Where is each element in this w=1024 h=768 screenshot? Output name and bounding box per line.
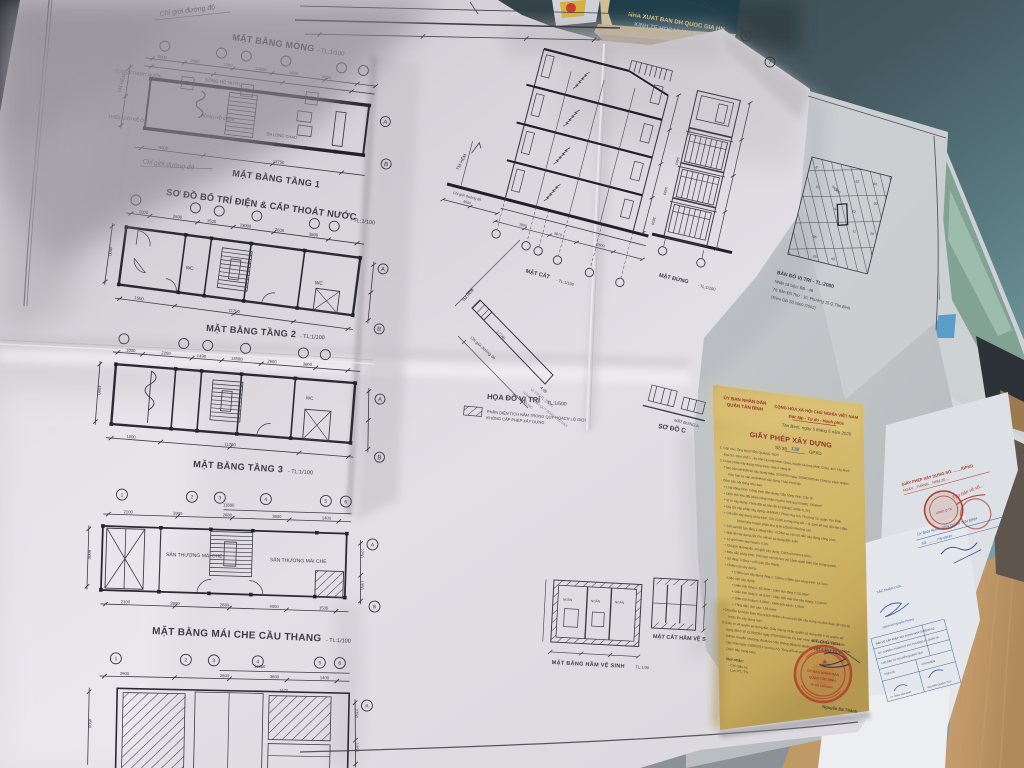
svg-text:2: 2 <box>190 495 193 501</box>
svg-text:3600: 3600 <box>270 674 280 679</box>
svg-text:WC: WC <box>306 395 315 401</box>
svg-text:1400: 1400 <box>320 675 330 680</box>
svg-text:5: 5 <box>318 660 321 666</box>
svg-text:6000: 6000 <box>87 550 92 560</box>
svg-text:2: 2 <box>184 658 187 664</box>
svg-text:1350: 1350 <box>355 743 360 753</box>
svg-text:WC: WC <box>314 280 323 287</box>
svg-text:1000: 1000 <box>126 434 136 440</box>
svg-text:1: 1 <box>114 656 117 662</box>
svg-text:3800: 3800 <box>303 361 313 367</box>
svg-text:2600: 2600 <box>267 359 277 365</box>
svg-text:1350: 1350 <box>360 580 365 590</box>
svg-text:5: 5 <box>324 499 327 505</box>
svg-text:NGĂN: NGĂN <box>563 598 573 603</box>
svg-text:3: 3 <box>218 495 221 501</box>
svg-text:1000: 1000 <box>126 347 136 353</box>
svg-text:2750: 2750 <box>360 548 365 558</box>
svg-text:11790: 11790 <box>224 441 236 447</box>
svg-text:11880: 11880 <box>254 664 266 669</box>
svg-text:A: A <box>383 120 388 126</box>
svg-text:1470: 1470 <box>279 688 289 693</box>
svg-text:3800: 3800 <box>272 514 282 519</box>
svg-text:A: A <box>381 267 386 273</box>
svg-text:4000: 4000 <box>96 385 102 395</box>
svg-text:1: 1 <box>120 492 123 498</box>
svg-text:2100: 2100 <box>123 509 133 514</box>
svg-text:1500: 1500 <box>319 605 329 610</box>
svg-text:11880: 11880 <box>223 502 235 507</box>
svg-text:2680: 2680 <box>223 512 233 517</box>
svg-text:6: 6 <box>344 499 347 505</box>
svg-text:4500: 4500 <box>87 719 92 729</box>
svg-text:1490: 1490 <box>197 353 207 359</box>
svg-text:2680: 2680 <box>220 602 230 607</box>
svg-text:3: 3 <box>212 658 215 664</box>
svg-text:WC: WC <box>185 265 194 272</box>
svg-text:B: B <box>384 162 389 168</box>
svg-text:13000: 13000 <box>231 356 244 362</box>
svg-text:NGĂN: NGĂN <box>591 599 601 604</box>
svg-text:2750: 2750 <box>354 709 359 719</box>
svg-text:3900: 3900 <box>170 601 180 606</box>
svg-text:2600: 2600 <box>220 673 230 678</box>
svg-text:TL:1/30: TL:1/30 <box>635 664 650 670</box>
svg-text:B: B <box>377 327 382 333</box>
svg-text:B: B <box>377 455 381 461</box>
svg-text:2100: 2100 <box>121 599 131 604</box>
svg-text:A: A <box>378 397 382 403</box>
svg-text:2200: 2200 <box>161 350 171 356</box>
svg-text:6: 6 <box>338 661 341 667</box>
svg-text:2900: 2900 <box>120 671 130 676</box>
svg-text:4000: 4000 <box>269 604 279 609</box>
svg-text:3900: 3900 <box>173 511 183 516</box>
svg-text:- TL:1/100: - TL:1/100 <box>326 638 351 645</box>
svg-text:NGĂN: NGĂN <box>615 600 625 605</box>
svg-text:4: 4 <box>264 497 267 503</box>
svg-text:1400: 1400 <box>322 515 332 520</box>
